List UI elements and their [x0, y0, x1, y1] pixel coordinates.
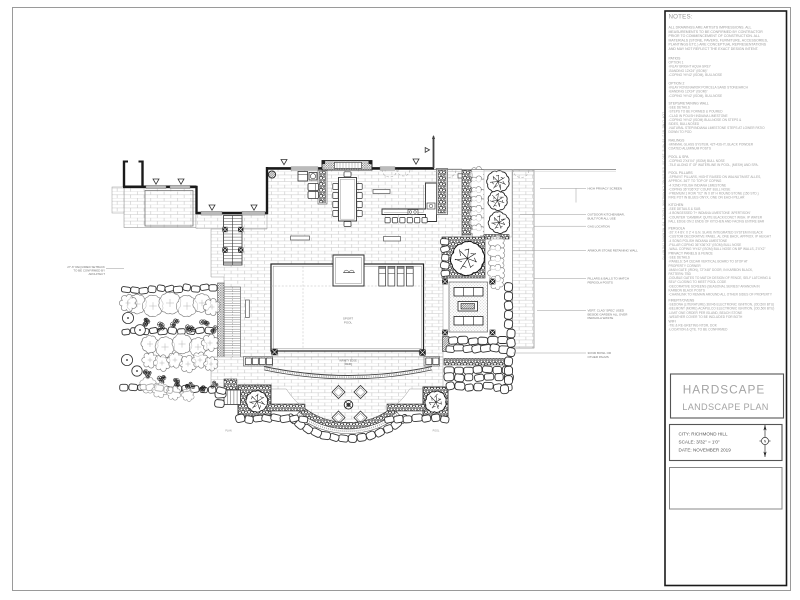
svg-text:FIRE POT IN BLUES ONYX, ONE ON: FIRE POT IN BLUES ONYX, ONE ON EACH PILL…: [669, 196, 746, 200]
svg-text:ARMOUR STONE RETAINING WALL: ARMOUR STONE RETAINING WALL: [588, 249, 639, 253]
svg-text:ARCHITECT: ARCHITECT: [88, 272, 105, 276]
svg-text:SCALE: 3/32" = 1'0": SCALE: 3/32" = 1'0": [679, 439, 720, 444]
svg-text:(WEIR): (WEIR): [344, 363, 352, 366]
svg-text:FALL EDGE ON 2 ENDS OF KITCHEN: FALL EDGE ON 2 ENDS OF KITCHEN AND FACIN…: [669, 219, 765, 223]
svg-text:HIGH PRIVACY SCREEN: HIGH PRIVACY SCREEN: [588, 187, 623, 191]
svg-text:-LOCATION & QTE. TO BE CONFIRM: -LOCATION & QTE. TO BE CONFIRMED: [669, 328, 729, 332]
svg-text:-TILE ALONG IT OF WATERLINE IN: -TILE ALONG IT OF WATERLINE IN POOL, (ME…: [669, 163, 759, 167]
svg-text:AND MAY NOT REFLECT THE EXACT: AND MAY NOT REFLECT THE EXACT DESIGN INT…: [669, 47, 759, 51]
svg-text:POOL: POOL: [433, 430, 440, 433]
svg-text:-WEATHER COVER TO BE INCLUDED: -WEATHER COVER TO BE INCLUDED FOR BOTH: [669, 315, 744, 319]
svg-text:PERGOLA WASTE: PERGOLA WASTE: [588, 316, 614, 320]
svg-text:HARDSCAPE: HARDSCAPE: [683, 383, 765, 397]
svg-text:GAS LOCATION: GAS LOCATION: [588, 224, 610, 228]
svg-text:LANDSCAPE PLAN: LANDSCAPE PLAN: [682, 402, 768, 412]
svg-text:-WALL COPING 'HY42' (ISOM) BUL: -WALL COPING 'HY42' (ISOM) BULL NOSE ON …: [669, 247, 766, 251]
svg-text:PLAN: PLAN: [225, 430, 232, 433]
svg-text:COATED ALUMINUM POSTS: COATED ALUMINUM POSTS: [669, 147, 711, 151]
svg-text:DATE: NOVEMBER 2019: DATE: NOVEMBER 2019: [679, 447, 732, 452]
svg-text:OTHER PALMS: OTHER PALMS: [588, 355, 609, 359]
svg-text:PERGOLA POSTS: PERGOLA POSTS: [588, 280, 613, 284]
svg-text:CITY: RICHMOND HILL: CITY: RICHMOND HILL: [679, 431, 728, 436]
svg-text:BUILT FOR ALL USE: BUILT FOR ALL USE: [588, 216, 616, 220]
svg-text:POOL: POOL: [344, 321, 353, 325]
svg-text:-COPING 'HY42' (ISOM), BULLNOS: -COPING 'HY42' (ISOM), BULLNOSE: [669, 94, 723, 98]
svg-text:DOWN TO POD: DOWN TO POD: [669, 130, 693, 134]
svg-text:-COPING 'HY42' (ISOM), BULLNOS: -COPING 'HY42' (ISOM), BULLNOSE: [669, 73, 723, 77]
svg-text:-CHAINLINK TO REMAIN AROUND AL: -CHAINLINK TO REMAIN AROUND ALL OTHER SI…: [669, 293, 773, 297]
svg-text:NOTES:: NOTES:: [669, 14, 693, 21]
